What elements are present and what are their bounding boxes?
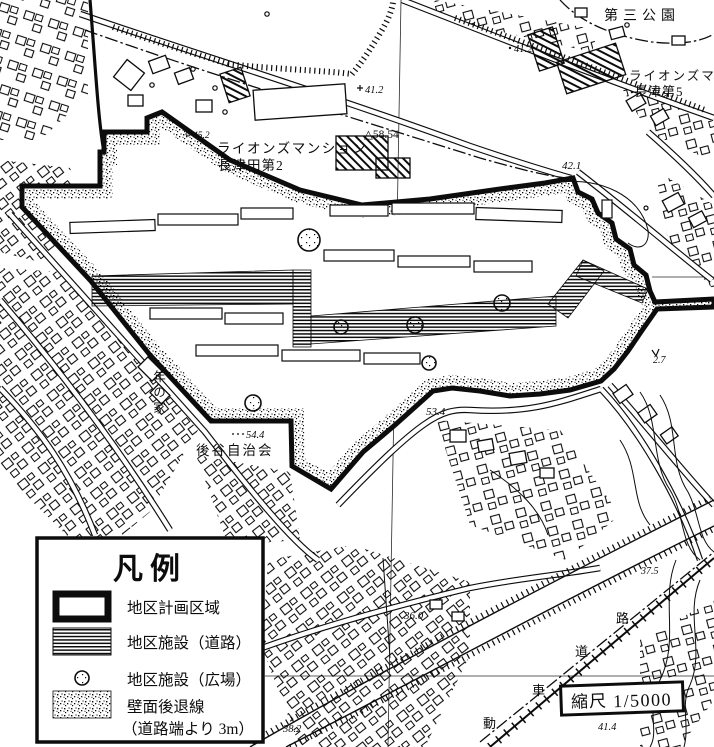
scale-label: 縮尺 <box>571 692 608 712</box>
mansion2-label-line1: ライオンズマンション <box>217 141 367 156</box>
elev-37-5: 37.5 <box>640 566 659 577</box>
elev-58-54: △58.54 <box>364 129 399 141</box>
elev-53-4: 53.4 <box>426 406 446 418</box>
elev-41-2-left: 41.2 <box>365 85 384 96</box>
mansion5-label-line1: ライオンズマ <box>629 68 714 83</box>
legend-label-plaza: 地区施設（広場） <box>127 671 251 689</box>
legend-label-district-road: 地区施設（道路） <box>127 634 251 652</box>
elev-38-2: 38.2 <box>282 724 302 735</box>
road-char-3: 道 <box>575 644 588 659</box>
dot-mark <box>509 47 511 49</box>
elev-2-7: 2.7 <box>653 355 667 366</box>
road-char-2: 車 <box>532 683 545 698</box>
park-label: 第三公園 <box>604 7 680 24</box>
legend-label-setback-line2: （道路端より 3m） <box>122 720 254 738</box>
legend-box: 凡例 地区計画区域 地区施設（道路） 地区施設（広場） 壁面後退線 （道路端より… <box>37 538 263 742</box>
legend-label-setback-line1: 壁面後退線 <box>127 698 205 716</box>
scale-box: 縮尺 1/5000 <box>561 682 684 715</box>
road-char-4: 路 <box>616 611 629 626</box>
elev-42-1: 42.1 <box>562 160 581 172</box>
scanned-city-plan-map: 第三公園 ライオンズマ 長津第5 ライオンズマンション 長津田第2 年の家 後谷… <box>0 0 714 747</box>
legend-symbol-district-road <box>53 628 111 655</box>
legend-symbol-district-area <box>56 594 108 619</box>
scale-value: 1/5000 <box>613 689 673 711</box>
elev-45-2: 45.2 <box>193 131 210 141</box>
mansion2-label-line2: 長津田第2 <box>218 157 284 173</box>
legend-symbol-plaza <box>75 671 89 685</box>
elev-41-4: 41.4 <box>598 722 617 733</box>
mansion5-label-line2: 長津第5 <box>634 84 684 99</box>
elev-54-4: 54.4 <box>246 430 265 441</box>
road-char-1: 動 <box>483 716 496 731</box>
assoc-label: 後谷自治会 <box>196 443 274 458</box>
legend-title: 凡例 <box>113 553 187 586</box>
map-canvas: 第三公園 ライオンズマ 長津第5 ライオンズマンション 長津田第2 年の家 後谷… <box>0 0 714 747</box>
legend-label-district-area: 地区計画区域 <box>127 599 220 617</box>
legend-symbol-setback <box>53 691 111 718</box>
elev-41-2-mid: 41.2 <box>514 44 533 55</box>
elev-36-0: 36.0 <box>403 610 424 622</box>
youth-home-label: 年の家 <box>151 370 165 417</box>
